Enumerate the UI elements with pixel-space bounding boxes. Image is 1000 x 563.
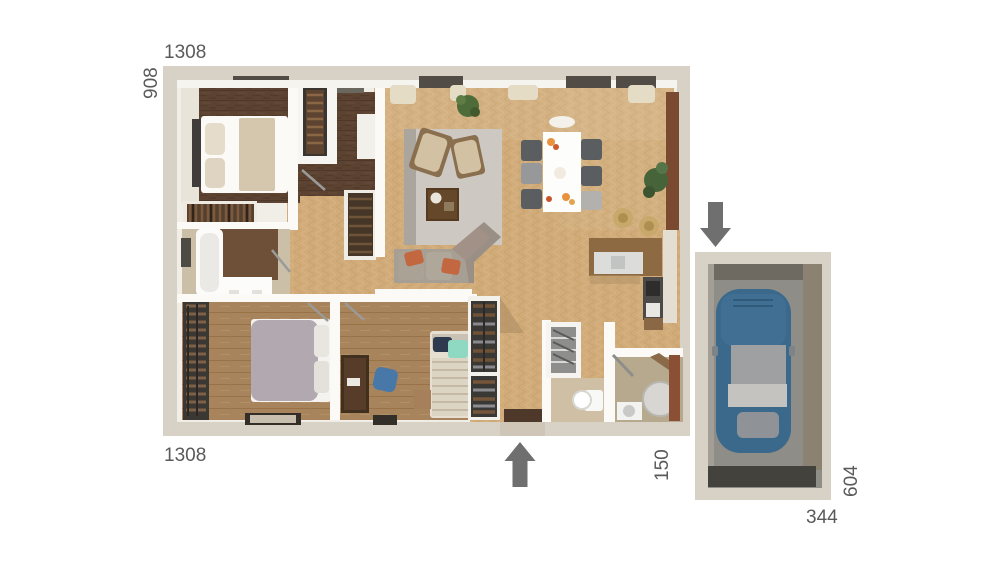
svg-text:344: 344 (806, 507, 838, 528)
svg-text:150: 150 (652, 449, 673, 481)
svg-text:604: 604 (841, 465, 862, 497)
svg-text:1308: 1308 (164, 42, 206, 63)
svg-text:908: 908 (141, 67, 162, 99)
svg-text:1308: 1308 (164, 445, 206, 466)
